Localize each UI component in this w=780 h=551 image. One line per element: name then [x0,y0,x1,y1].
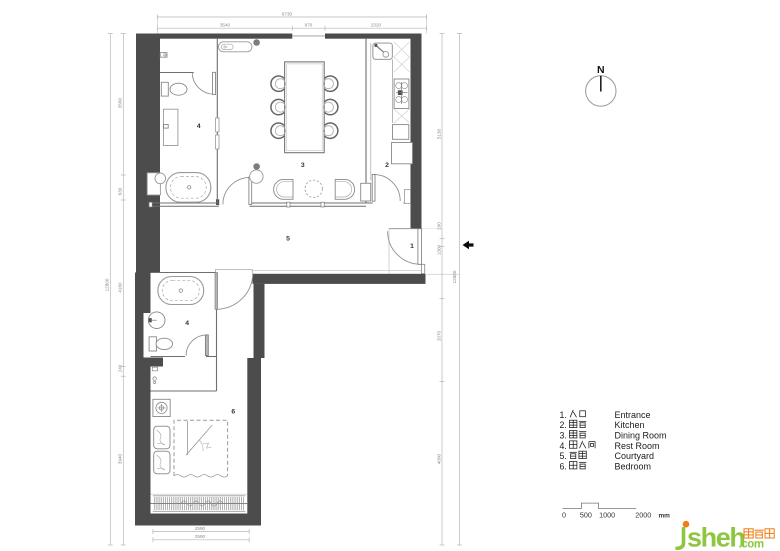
svg-text:6730: 6730 [282,12,293,17]
svg-text:2: 2 [385,162,389,169]
svg-text:Bedroom: Bedroom [615,461,652,471]
svg-text:630: 630 [118,187,123,195]
svg-text:2590: 2590 [195,534,206,539]
svg-text:200: 200 [436,222,441,230]
svg-text:1300: 1300 [436,244,441,255]
svg-text:4090: 4090 [436,453,441,464]
svg-text:Kitchen: Kitchen [615,420,645,430]
svg-text:2070: 2070 [436,330,441,341]
svg-text:4: 4 [197,123,201,130]
svg-text:3580: 3580 [118,97,123,108]
svg-text:2.: 2. [560,420,567,430]
svg-text:4160: 4160 [118,282,123,293]
svg-text:2590: 2590 [195,526,206,531]
svg-text:870: 870 [305,22,313,27]
svg-text:3540: 3540 [220,22,231,27]
svg-text:5130: 5130 [436,128,441,139]
svg-text:Entrance: Entrance [615,410,651,420]
svg-text:3.: 3. [560,430,567,440]
svg-text:3: 3 [301,162,305,169]
svg-text:Dining Room: Dining Room [615,430,667,440]
svg-text:Rest Room: Rest Room [615,441,660,451]
svg-text:1: 1 [410,243,414,250]
svg-text:sheh: sheh [687,523,744,551]
svg-text:N: N [597,64,605,76]
svg-text:mm: mm [659,512,671,519]
svg-text:5.: 5. [560,451,567,461]
svg-text:6.: 6. [560,461,567,471]
svg-text:0: 0 [562,510,566,519]
svg-text:6: 6 [231,408,235,415]
svg-text:4.: 4. [560,441,567,451]
svg-text:12800: 12800 [105,278,110,291]
svg-text:240: 240 [118,364,123,372]
svg-text:3940: 3940 [118,453,123,464]
svg-text:1000: 1000 [599,510,615,519]
svg-text:5: 5 [286,235,290,242]
svg-text:12800: 12800 [452,270,457,283]
svg-text:2320: 2320 [371,22,382,27]
svg-text:4: 4 [185,320,189,327]
svg-text:1.: 1. [560,410,567,420]
svg-text:2000: 2000 [635,510,651,519]
svg-text:Courtyard: Courtyard [615,451,655,461]
svg-text:.com: .com [739,539,764,551]
svg-text:500: 500 [580,510,592,519]
